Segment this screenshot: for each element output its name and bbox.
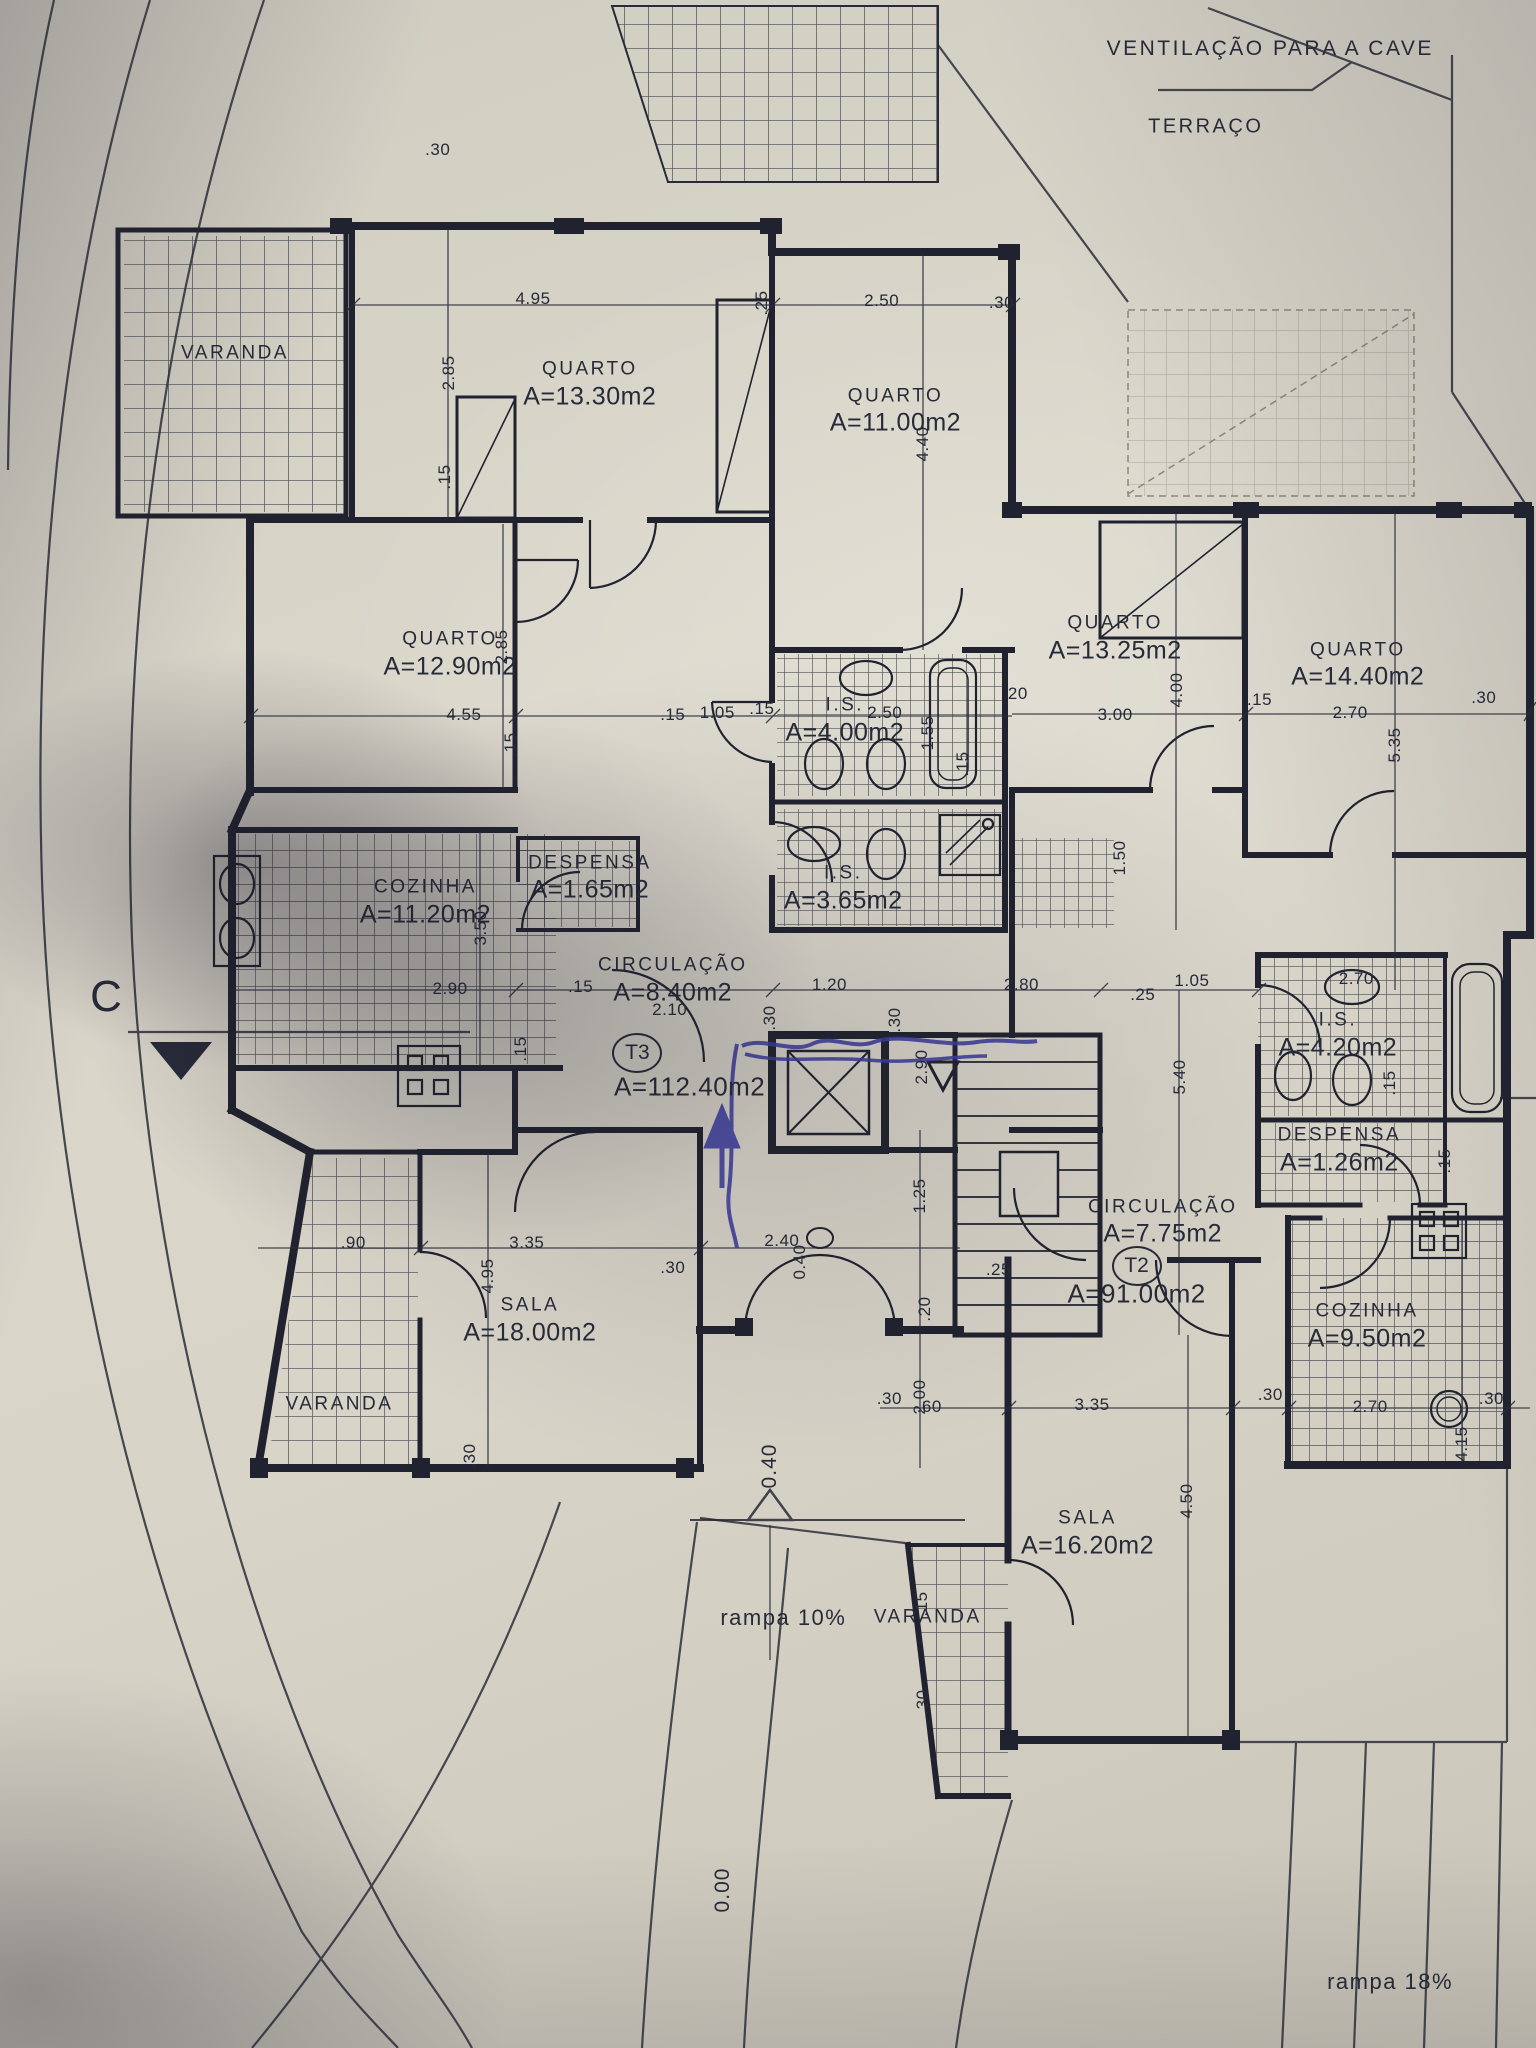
dimension-label: .60 — [917, 1397, 942, 1417]
dimension-label: .30 — [913, 1689, 933, 1714]
dimension-label: 4.50 — [1177, 1484, 1197, 1519]
room-label-sala: SALAA=18.00m2 — [463, 1295, 596, 1348]
room-label-varanda: VARANDA — [181, 343, 289, 366]
room-label-varanda: VARANDA — [285, 1394, 393, 1417]
dimension-label: .30 — [1258, 1385, 1283, 1405]
dimension-label: 2.50 — [864, 291, 899, 311]
dimension-label: 1.25 — [910, 1178, 930, 1213]
dimension-label: 2.10 — [652, 1000, 687, 1020]
dimension-label: 4.00 — [1167, 673, 1187, 708]
dimension-label: 1.05 — [700, 703, 735, 723]
dimension-label: 2.90 — [433, 979, 468, 999]
dimension-label: 2.70 — [1339, 969, 1374, 989]
dimension-label: 4.15 — [1452, 1426, 1472, 1461]
room-label-quarto: QUARTOA=13.30m2 — [523, 359, 656, 412]
dimension-label: 2.70 — [1333, 703, 1368, 723]
dimension-label: .30 — [660, 1258, 685, 1278]
dimension-label: .15 — [1380, 1071, 1400, 1096]
dimension-label: .30 — [877, 1389, 902, 1409]
dimension-label: .15 — [511, 1036, 531, 1061]
dimension-label: .25 — [752, 291, 772, 316]
ramp-right-label: rampa 18% — [1327, 1969, 1453, 1995]
dimension-label: 3.35 — [1075, 1395, 1110, 1415]
dimension-label: .15 — [435, 465, 455, 490]
dimension-label: 1.05 — [1174, 971, 1209, 991]
dimension-label: 1.20 — [812, 975, 847, 995]
dimension-label: 2.90 — [912, 1049, 932, 1084]
room-label-i-s-: I.S.A=3.65m2 — [784, 862, 903, 915]
room-label-despensa: DESPENSAA=1.65m2 — [528, 852, 651, 905]
dimension-label: .30 — [989, 293, 1014, 313]
floor-plan-photo: VENTILAÇÃO PARA A CAVE TERRAÇO rampa 10%… — [0, 0, 1536, 2048]
dimension-label: 3.00 — [1098, 705, 1133, 725]
section-marker: C — [90, 972, 122, 1022]
room-label-quarto: QUARTOA=11.00m2 — [830, 385, 961, 438]
dimension-label: 2.50 — [867, 703, 902, 723]
dimension-label: .15 — [912, 1591, 932, 1616]
dimension-label: .15 — [568, 977, 593, 997]
dimension-label: .30 — [425, 140, 450, 160]
dimension-label: .20 — [1003, 684, 1028, 704]
dimension-label: .25 — [1130, 985, 1155, 1005]
dimension-label: 2.85 — [439, 355, 459, 390]
level-label-040: 0.40 — [758, 1444, 782, 1489]
dimension-label: 4.40 — [913, 427, 933, 462]
dimension-label: .30 — [760, 1005, 780, 1030]
dimension-label: .30 — [1471, 688, 1496, 708]
dimension-label: 4.95 — [515, 289, 550, 309]
dimension-label: .15 — [1435, 1149, 1455, 1174]
dimension-label: 2.70 — [1353, 1397, 1388, 1417]
room-label-sala: SALAA=16.20m2 — [1021, 1508, 1154, 1561]
dimension-label: .30 — [460, 1444, 480, 1469]
dimension-label: 1.55 — [918, 716, 938, 751]
dimension-label: .30 — [885, 1007, 905, 1032]
dimension-label: 5.40 — [1170, 1060, 1190, 1095]
dimension-label: .15 — [1247, 690, 1272, 710]
room-label-cozinha: COZINHAA=9.50m2 — [1308, 1301, 1427, 1354]
dimension-label: 4.55 — [446, 705, 481, 725]
room-label-despensa: DESPENSAA=1.26m2 — [1278, 1125, 1401, 1178]
unit-code-t3: T3 — [612, 1033, 662, 1073]
dimension-label: 1.50 — [1110, 841, 1130, 876]
unit-area-t3: A=112.40m2 — [614, 1072, 765, 1103]
room-label-circula-o: CIRCULAÇÃOA=7.75m2 — [1088, 1196, 1238, 1249]
dimension-label: .15 — [749, 699, 774, 719]
dimension-label: 5.35 — [1385, 728, 1405, 763]
unit-area-t2: A=91.00m2 — [1068, 1279, 1206, 1310]
ventilation-note: VENTILAÇÃO PARA A CAVE — [1107, 37, 1434, 61]
dimension-label: .30 — [1479, 1389, 1504, 1409]
dimension-label: .15 — [953, 751, 973, 776]
dimension-label: .90 — [341, 1233, 366, 1253]
room-label-quarto: QUARTOA=14.40m2 — [1291, 639, 1424, 692]
dimension-label: .15 — [501, 733, 521, 758]
dimension-label: .25 — [986, 1260, 1011, 1280]
ramp-left-label: rampa 10% — [720, 1605, 846, 1631]
labels-layer: VENTILAÇÃO PARA A CAVE TERRAÇO rampa 10%… — [0, 0, 1536, 2048]
level-label-000: 0.00 — [711, 1868, 735, 1913]
dimension-label: 3.50 — [471, 910, 491, 945]
terrace-label: TERRAÇO — [1148, 115, 1263, 138]
dimension-label: 3.35 — [509, 1233, 544, 1253]
dimension-label: 0.40 — [790, 1244, 810, 1279]
dimension-label: .15 — [660, 705, 685, 725]
dimension-label: .20 — [915, 1296, 935, 1321]
dimension-label: 2.85 — [492, 630, 512, 665]
room-label-i-s-: I.S.A=4.20m2 — [1279, 1010, 1398, 1063]
dimension-label: 4.95 — [478, 1258, 498, 1293]
room-label-quarto: QUARTOA=13.25m2 — [1049, 613, 1182, 666]
dimension-label: 2.80 — [1004, 975, 1039, 995]
